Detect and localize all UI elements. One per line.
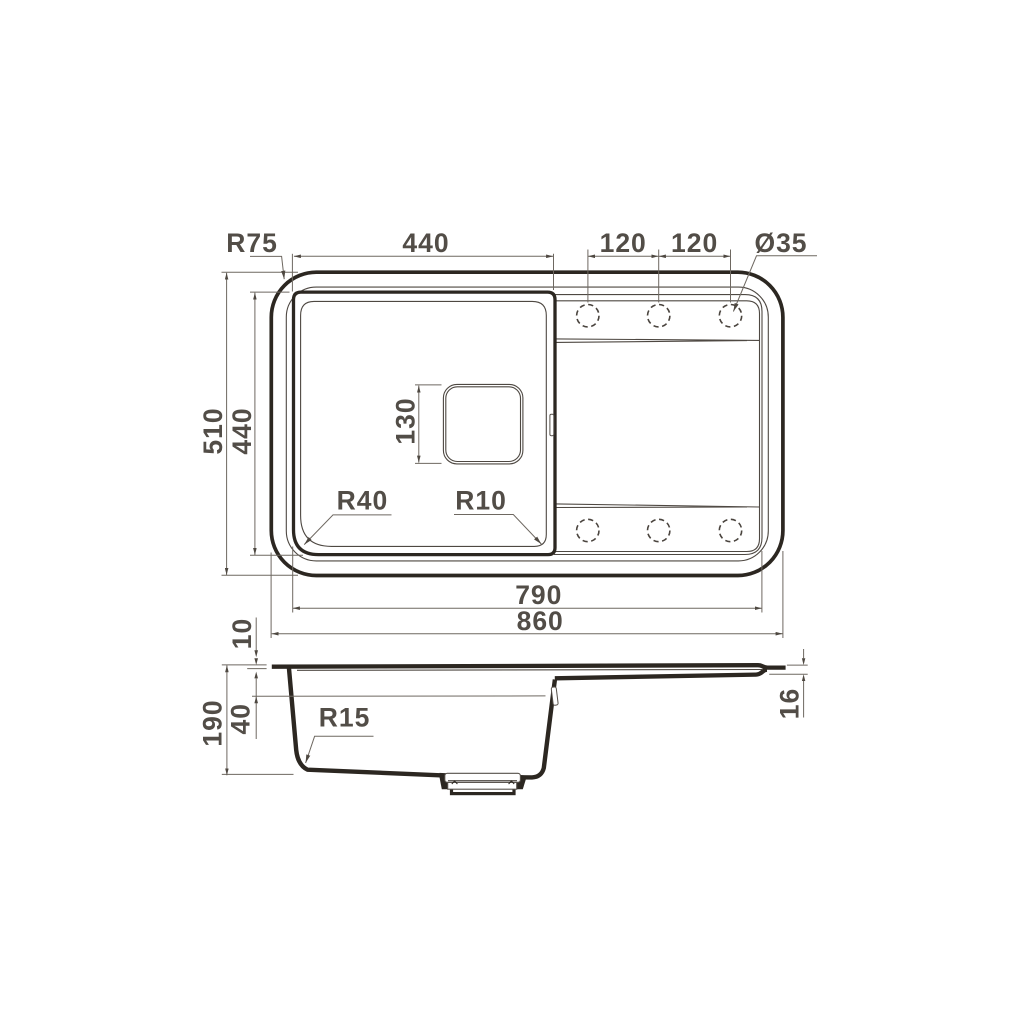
svg-text:440: 440 bbox=[402, 228, 449, 258]
svg-text:Ø35: Ø35 bbox=[754, 228, 807, 258]
svg-text:R75: R75 bbox=[226, 228, 278, 258]
svg-text:860: 860 bbox=[517, 606, 564, 636]
svg-text:190: 190 bbox=[198, 699, 228, 746]
svg-text:440: 440 bbox=[227, 407, 257, 454]
svg-text:40: 40 bbox=[226, 703, 256, 734]
svg-text:16: 16 bbox=[775, 688, 805, 719]
svg-text:R10: R10 bbox=[455, 486, 507, 516]
svg-text:10: 10 bbox=[227, 618, 257, 649]
svg-text:510: 510 bbox=[198, 407, 228, 454]
svg-text:120: 120 bbox=[671, 228, 718, 258]
svg-text:R15: R15 bbox=[319, 703, 371, 733]
svg-text:120: 120 bbox=[600, 228, 647, 258]
svg-text:R40: R40 bbox=[337, 486, 389, 516]
svg-text:130: 130 bbox=[391, 397, 421, 444]
